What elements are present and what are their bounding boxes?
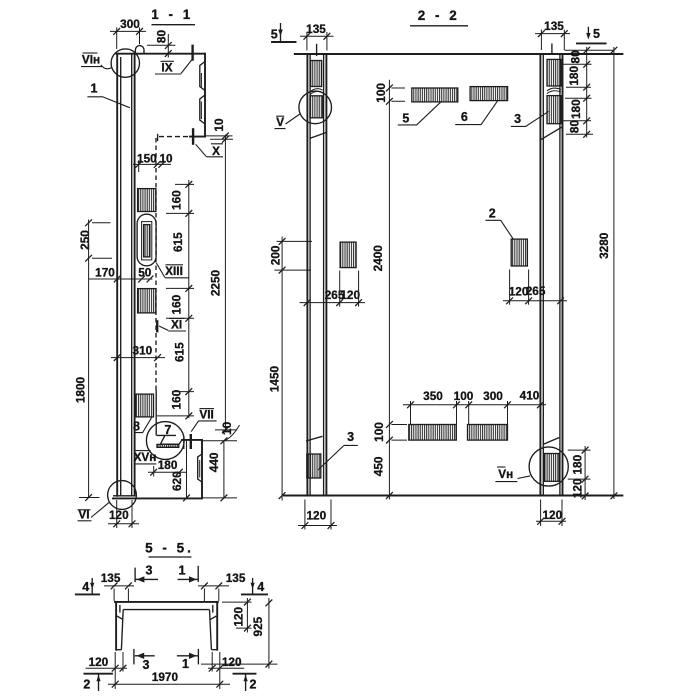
svg-text:180: 180 — [570, 454, 584, 474]
svg-text:120: 120 — [232, 607, 246, 627]
svg-text:180: 180 — [158, 458, 178, 472]
svg-text:160: 160 — [170, 294, 184, 314]
svg-text:100: 100 — [374, 83, 388, 103]
svg-text:2 - 2: 2 - 2 — [418, 8, 460, 23]
svg-text:VIн: VIн — [82, 53, 100, 67]
svg-text:2250: 2250 — [209, 269, 223, 296]
svg-text:80: 80 — [568, 50, 582, 64]
svg-text:300: 300 — [120, 17, 140, 31]
svg-text:3280: 3280 — [597, 232, 611, 259]
svg-text:X: X — [212, 144, 220, 158]
svg-text:XIII: XIII — [165, 264, 183, 278]
svg-text:120: 120 — [89, 655, 109, 669]
svg-text:135: 135 — [101, 571, 121, 585]
svg-text:440: 440 — [207, 452, 221, 472]
svg-text:120: 120 — [109, 508, 129, 522]
svg-text:5: 5 — [271, 28, 278, 42]
svg-text:4: 4 — [257, 580, 264, 594]
svg-text:80: 80 — [154, 30, 168, 44]
svg-text:310: 310 — [133, 343, 153, 357]
svg-text:V: V — [276, 115, 284, 129]
svg-text:180: 180 — [569, 99, 583, 119]
svg-text:120: 120 — [542, 508, 562, 522]
svg-text:410: 410 — [520, 389, 540, 403]
svg-text:2: 2 — [489, 207, 496, 221]
svg-text:7: 7 — [164, 423, 171, 437]
svg-text:3: 3 — [143, 658, 150, 672]
svg-text:1: 1 — [91, 81, 98, 95]
svg-text:2: 2 — [83, 678, 90, 692]
svg-text:8: 8 — [133, 419, 140, 433]
svg-text:135: 135 — [226, 571, 246, 585]
svg-text:450: 450 — [372, 456, 386, 476]
svg-text:10: 10 — [159, 151, 173, 165]
svg-text:170: 170 — [95, 266, 115, 280]
svg-text:10: 10 — [220, 421, 234, 435]
svg-text:160: 160 — [170, 389, 184, 409]
svg-text:350: 350 — [423, 389, 443, 403]
svg-text:615: 615 — [172, 342, 186, 362]
svg-text:Vн: Vн — [498, 467, 513, 481]
svg-text:135: 135 — [544, 19, 564, 33]
svg-text:4: 4 — [82, 580, 89, 594]
svg-text:50: 50 — [138, 266, 152, 280]
svg-text:10: 10 — [212, 118, 226, 132]
svg-text:XI: XI — [171, 317, 182, 331]
svg-text:615: 615 — [171, 232, 185, 252]
svg-text:5: 5 — [402, 111, 409, 125]
svg-text:3: 3 — [347, 430, 354, 444]
svg-text:IX: IX — [161, 61, 172, 75]
svg-text:200: 200 — [269, 245, 283, 265]
svg-text:6: 6 — [461, 110, 468, 124]
svg-text:100: 100 — [372, 422, 386, 442]
svg-text:1 - 1: 1 - 1 — [151, 7, 193, 22]
svg-text:3: 3 — [514, 112, 521, 126]
svg-text:XVн: XVн — [134, 450, 157, 464]
svg-text:120: 120 — [306, 509, 326, 523]
svg-text:300: 300 — [483, 389, 503, 403]
svg-text:VII: VII — [199, 407, 213, 421]
svg-text:120: 120 — [222, 655, 242, 669]
svg-text:2: 2 — [250, 678, 257, 692]
svg-text:1800: 1800 — [73, 376, 87, 403]
svg-text:1: 1 — [182, 657, 189, 671]
svg-text:1450: 1450 — [268, 365, 282, 392]
svg-text:160: 160 — [170, 190, 184, 210]
svg-text:1: 1 — [179, 563, 186, 577]
svg-text:1970: 1970 — [152, 670, 179, 684]
svg-text:3: 3 — [146, 564, 153, 578]
svg-text:250: 250 — [78, 230, 92, 250]
svg-text:120: 120 — [340, 288, 360, 302]
svg-text:180: 180 — [567, 66, 581, 86]
svg-text:5: 5 — [593, 27, 600, 41]
svg-text:2400: 2400 — [371, 245, 385, 272]
svg-text:5 - 5.: 5 - 5. — [145, 541, 194, 556]
svg-text:80: 80 — [568, 120, 582, 134]
svg-text:100: 100 — [454, 389, 474, 403]
svg-text:925: 925 — [251, 616, 265, 636]
